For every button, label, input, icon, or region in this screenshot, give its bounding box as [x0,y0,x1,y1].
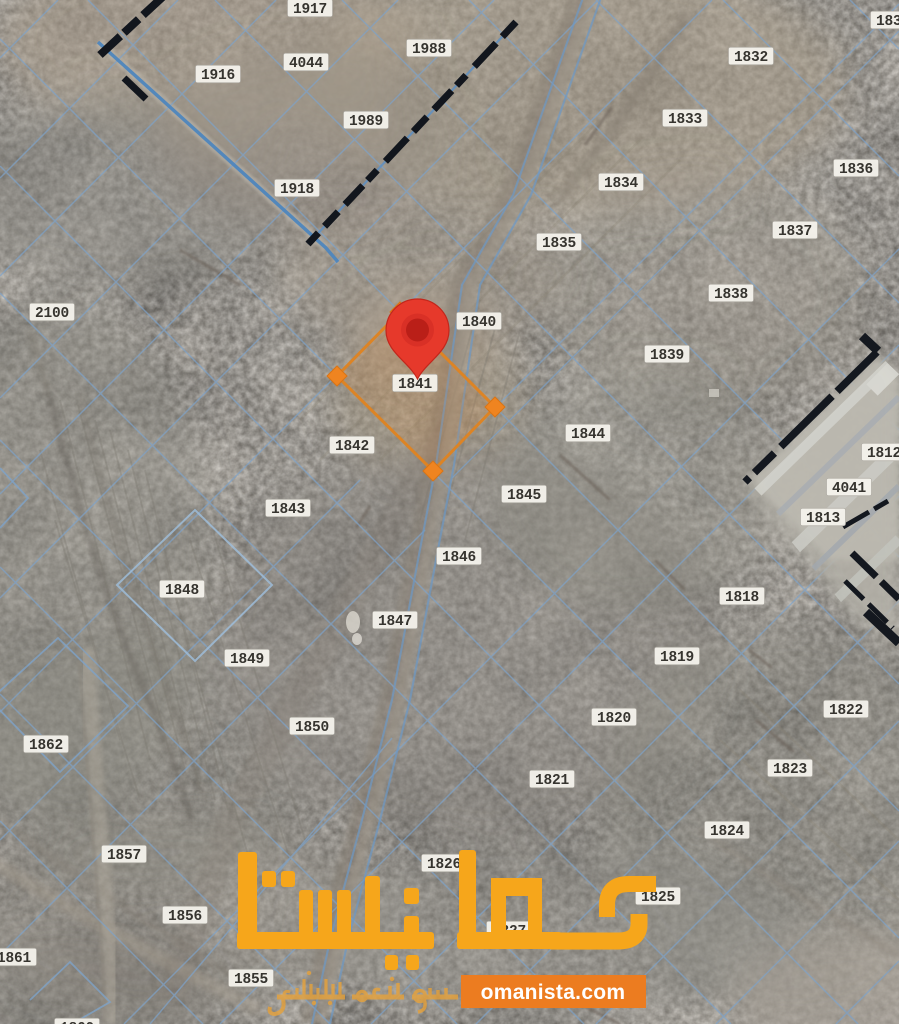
svg-text:1833: 1833 [668,112,702,128]
svg-text:1845: 1845 [507,488,541,504]
svg-text:1861: 1861 [0,951,31,967]
svg-text:1818: 1818 [725,590,759,606]
svg-text:1916: 1916 [201,68,235,84]
svg-text:1823: 1823 [773,762,807,778]
svg-text:1988: 1988 [412,42,446,58]
svg-text:1826: 1826 [427,857,461,873]
svg-text:1820: 1820 [597,711,631,727]
svg-text:1844: 1844 [571,427,606,443]
svg-text:1838: 1838 [714,287,748,303]
svg-text:1831: 1831 [876,14,899,30]
svg-text:1843: 1843 [271,502,305,518]
svg-text:1819: 1819 [660,650,694,666]
svg-text:1862: 1862 [29,738,63,754]
svg-text:1840: 1840 [462,315,496,331]
svg-text:1856: 1856 [168,909,202,925]
svg-text:1849: 1849 [230,652,264,668]
svg-text:4041: 4041 [832,481,867,497]
svg-text:1918: 1918 [280,182,314,198]
svg-text:1832: 1832 [734,50,768,66]
svg-text:1812: 1812 [867,446,899,462]
svg-text:2100: 2100 [35,306,69,322]
svg-text:1839: 1839 [650,348,684,364]
svg-text:1821: 1821 [535,773,570,789]
svg-text:1842: 1842 [335,439,369,455]
svg-text:1850: 1850 [295,720,329,736]
svg-text:omanista.com: omanista.com [481,981,626,1004]
svg-text:1847: 1847 [378,614,412,630]
svg-text:1824: 1824 [710,824,745,840]
svg-text:1834: 1834 [604,176,639,192]
svg-text:1841: 1841 [398,377,433,393]
svg-text:1857: 1857 [107,848,141,864]
svg-text:1822: 1822 [829,703,863,719]
svg-text:1836: 1836 [839,162,873,178]
svg-text:1855: 1855 [234,972,268,988]
svg-text:1813: 1813 [806,511,840,527]
svg-text:1989: 1989 [349,114,383,130]
svg-text:1917: 1917 [293,2,327,18]
svg-text:1846: 1846 [442,550,476,566]
svg-text:1848: 1848 [165,583,199,599]
svg-text:1825: 1825 [641,890,675,906]
svg-text:1835: 1835 [542,236,576,252]
svg-text:4044: 4044 [289,56,324,72]
svg-text:1837: 1837 [778,224,812,240]
